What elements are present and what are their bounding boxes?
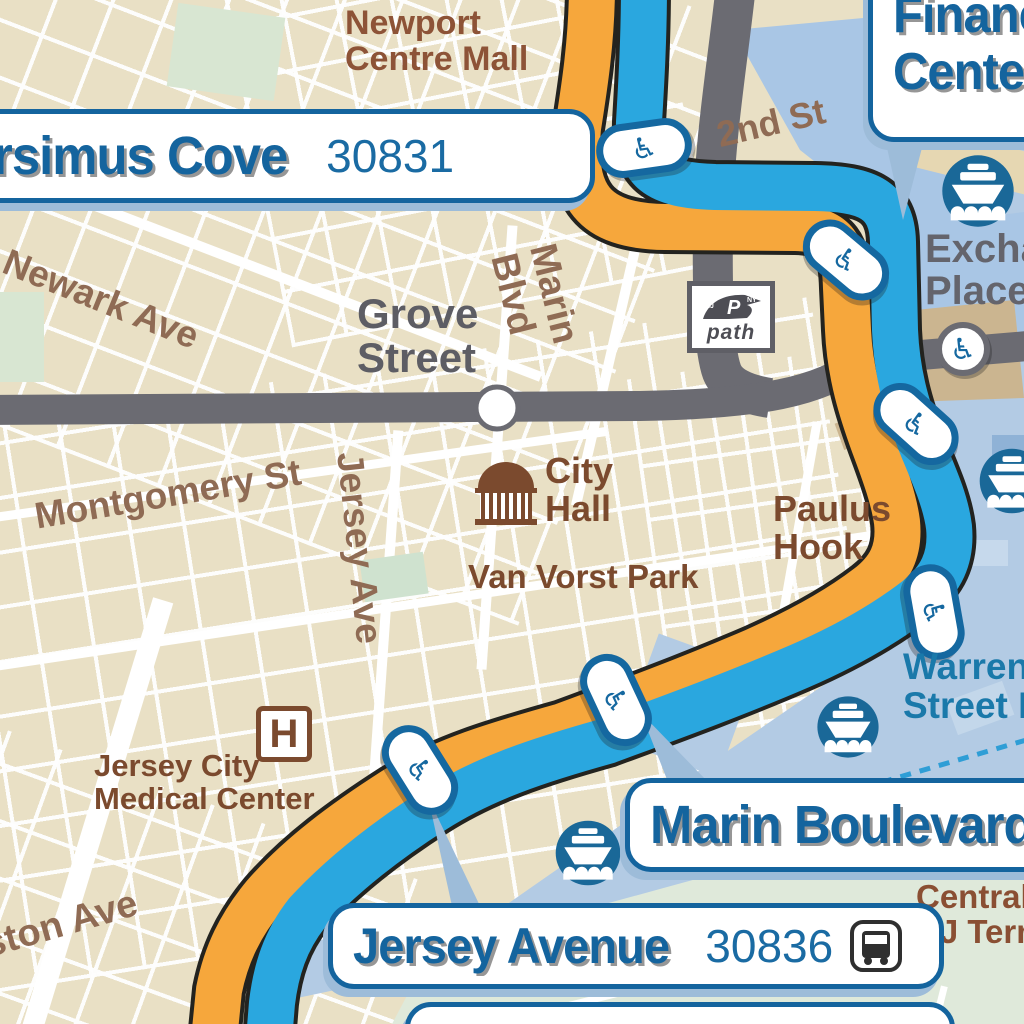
city-hall-icon <box>475 462 537 525</box>
path-logo-ny: NY <box>747 297 757 304</box>
path-logo-nj: NJ <box>705 303 714 310</box>
station-name: Harsimus Cove <box>0 125 287 187</box>
label-grove-street: Grove Street <box>357 292 478 380</box>
station-number: 30836 <box>705 919 833 973</box>
label-jersey-city-medical-center: Jersey City Medical Center <box>94 750 315 815</box>
wheelchair-icon: ♿ <box>950 335 976 364</box>
wheelchair-icon: ♿ <box>897 405 936 444</box>
label-paulus-hook: Paulus Hook <box>773 490 891 566</box>
label-van-vorst-park: Van Vorst Park <box>468 560 699 595</box>
wheelchair-icon: ♿ <box>917 597 950 628</box>
station-sign-marin-boulevard: Marin Boulevard <box>625 778 1024 872</box>
label-city-hall: City Hall <box>545 452 613 528</box>
wheelchair-icon: ♿ <box>827 241 866 280</box>
wheelchair-icon: ♿ <box>401 751 439 788</box>
ferry-icon-liberty-harbor <box>556 821 621 886</box>
transit-map: P NJ NY path H ♿ ♿ ♿ ♿ ♿ ♿ ♿ Newport Cen… <box>0 0 1024 1024</box>
label-warren-street: Warren Street Pier <box>903 648 1024 726</box>
wheelchair-icon: ♿ <box>629 132 659 164</box>
ferry-icon-harborside <box>980 449 1024 514</box>
path-logo-p: P <box>727 297 741 319</box>
station-sign-financial-center: Financial Center <box>868 0 1024 142</box>
station-name-line1: Financial <box>893 0 1024 44</box>
station-name-line2: Center <box>893 44 1024 101</box>
ferry-icon-newport <box>942 155 1013 226</box>
path-logo: P NJ NY path <box>687 281 775 353</box>
station-sign-partial-bottom <box>405 1002 955 1024</box>
station-number: 30831 <box>326 129 454 183</box>
path-logo-wordmark: path <box>707 322 755 343</box>
grove-street-station-circle <box>476 387 518 429</box>
label-newport-centre-mall: Newport Centre Mall <box>345 6 528 77</box>
station-sign-harsimus-cove: Harsimus Cove 30831 <box>0 109 595 203</box>
station-name: Marin Boulevard <box>650 794 1024 856</box>
station-sign-jersey-avenue: Jersey Avenue 30836 <box>328 903 944 989</box>
label-exchange-place: Exchange Place <box>925 228 1024 312</box>
wheelchair-icon: ♿ <box>597 682 634 718</box>
exchange-place-path-station: ♿ <box>936 322 990 376</box>
bus-icon <box>849 919 903 973</box>
ferry-icon-warren-street <box>817 696 878 757</box>
station-name: Jersey Avenue <box>353 917 669 975</box>
